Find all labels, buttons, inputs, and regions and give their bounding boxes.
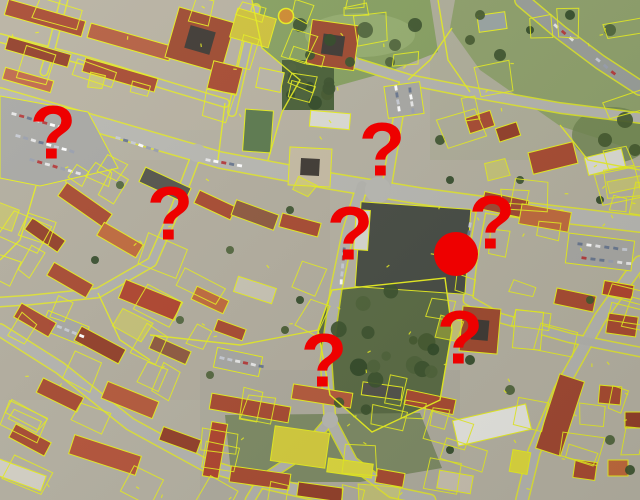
question-marker-7[interactable]: ? [301, 324, 347, 400]
map-viewport[interactable]: ??????? [0, 0, 640, 500]
satellite-map[interactable] [0, 0, 640, 500]
question-marker-6[interactable]: ? [437, 301, 483, 377]
question-marker-4[interactable]: ? [327, 197, 373, 273]
question-marker-1[interactable]: ? [30, 96, 76, 172]
selected-location-marker[interactable] [434, 232, 478, 276]
question-marker-2[interactable]: ? [147, 177, 193, 253]
question-marker-3[interactable]: ? [359, 113, 405, 189]
survey-points-layer [279, 9, 294, 24]
